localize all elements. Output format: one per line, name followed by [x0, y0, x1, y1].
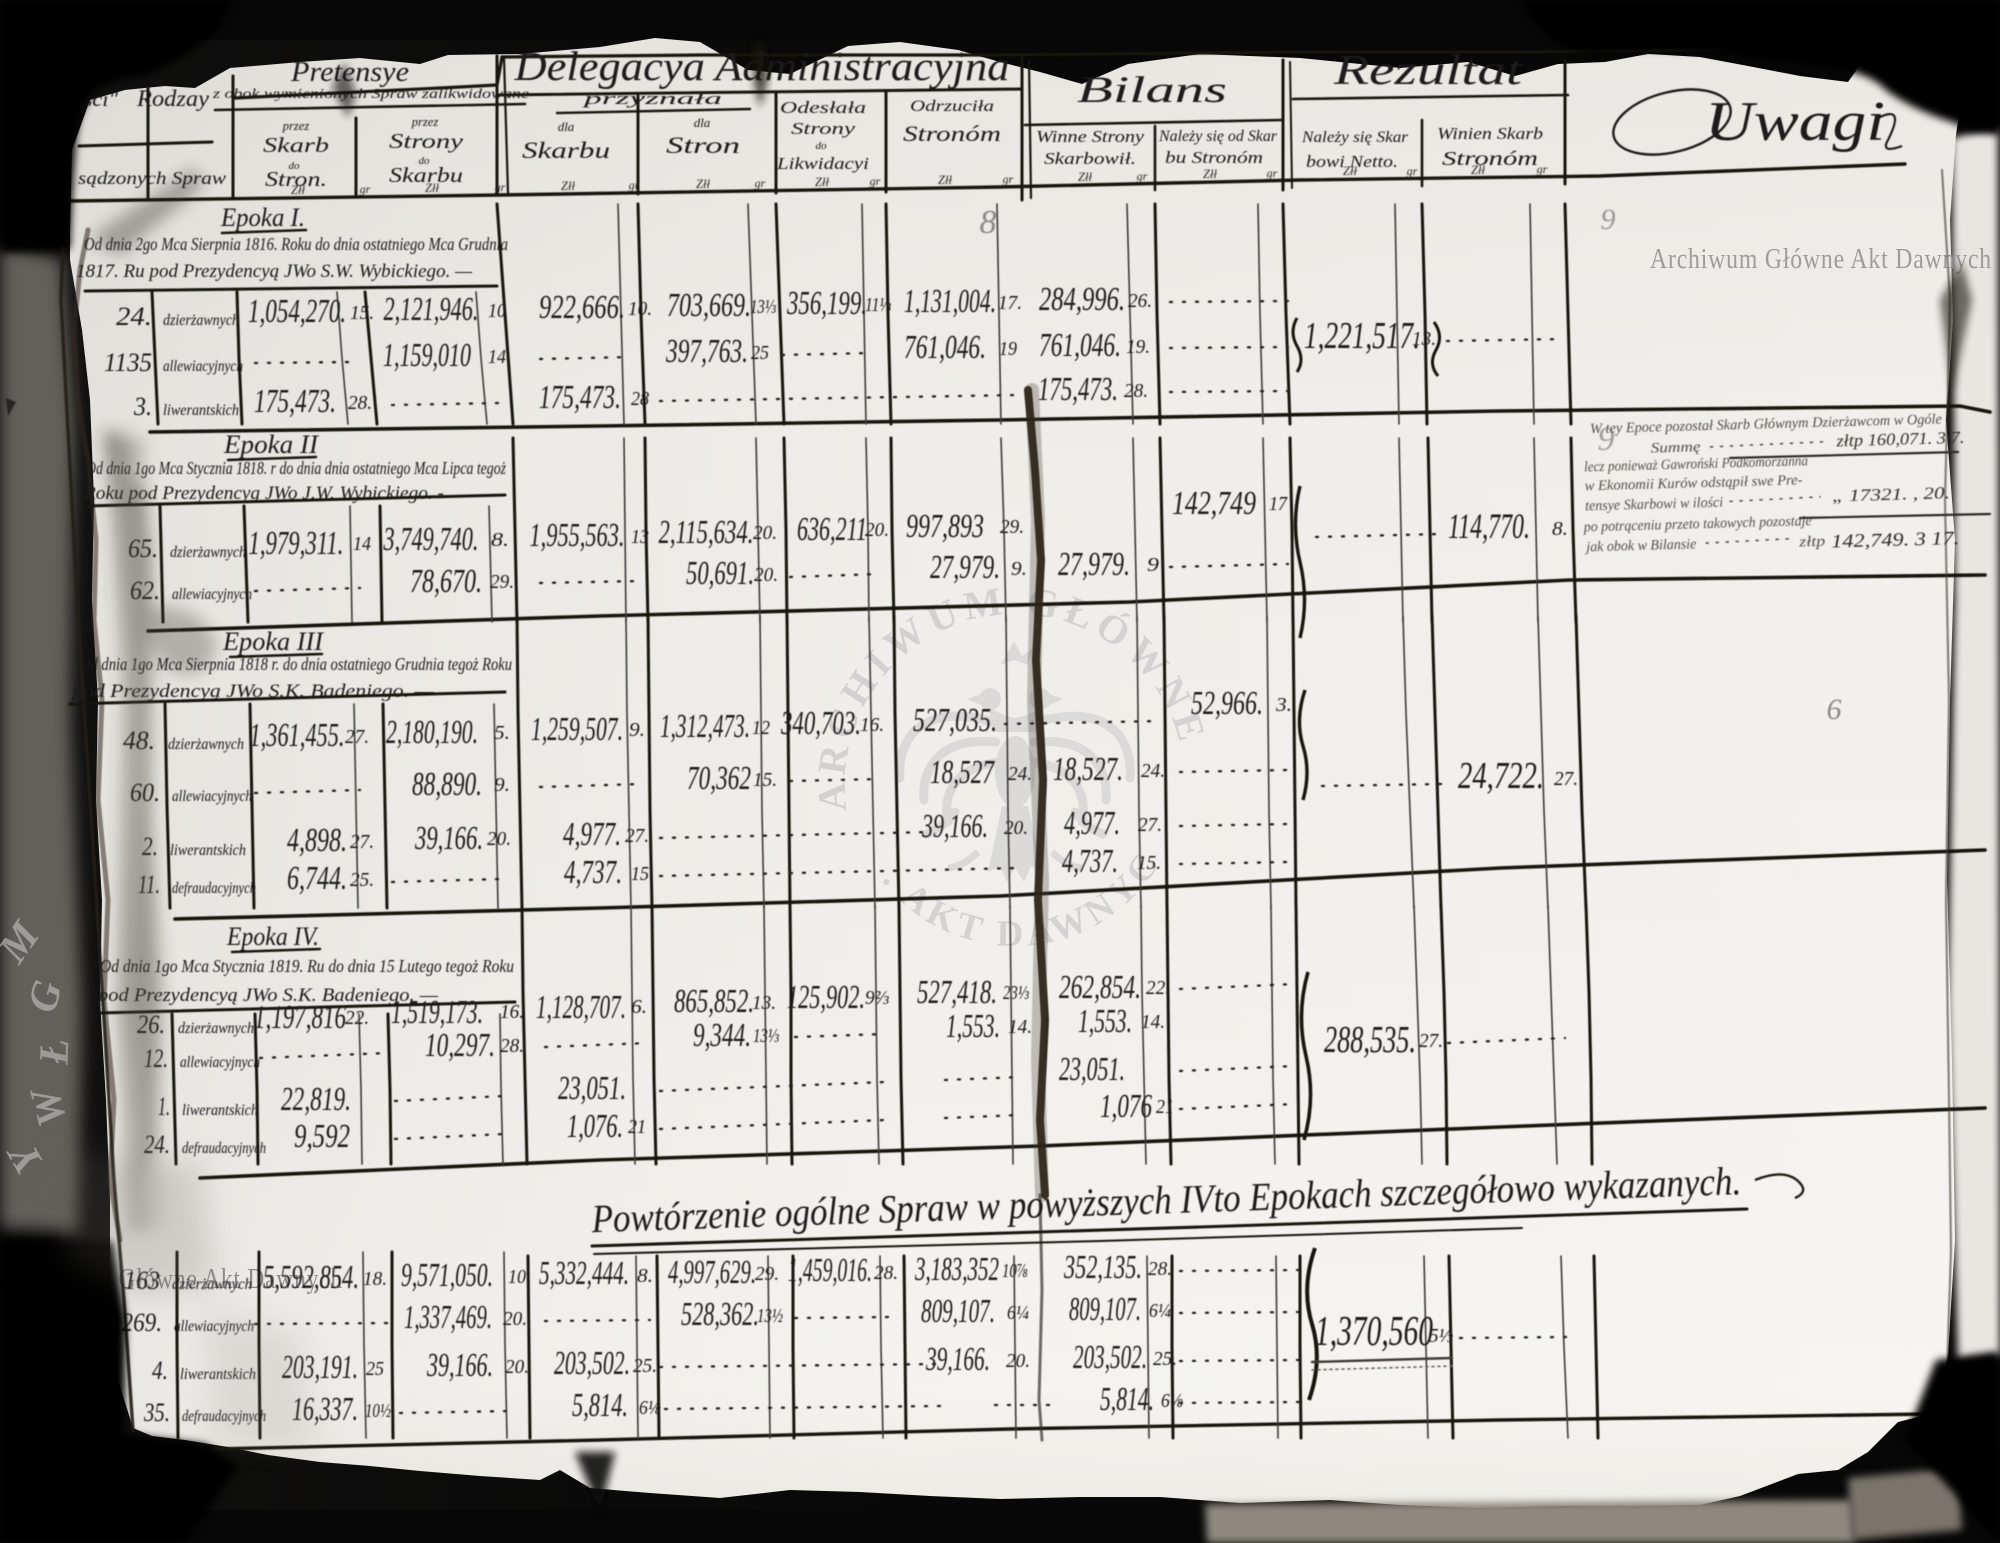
svg-text:12: 12: [752, 717, 770, 739]
svg-text:15.: 15.: [350, 302, 374, 324]
svg-text:6,744.: 6,744.: [287, 860, 347, 897]
svg-text:1,955,563.: 1,955,563.: [530, 517, 625, 554]
svg-text:1,221,517.: 1,221,517.: [1304, 315, 1420, 357]
svg-text:1,054,270.: 1,054,270.: [248, 293, 346, 330]
svg-text:142,749: 142,749: [1172, 485, 1256, 522]
svg-text:dzierżawnych: dzierżawnych: [178, 1020, 254, 1037]
svg-text:Odesłała: Odesłała: [780, 98, 866, 117]
svg-text:352,135.: 352,135.: [1063, 1249, 1142, 1286]
svg-text:9.: 9.: [494, 774, 510, 796]
svg-text:4,737.: 4,737.: [1062, 843, 1118, 880]
svg-text:1,337,469.: 1,337,469.: [404, 1299, 492, 1336]
svg-text:114,770.: 114,770.: [1448, 506, 1530, 546]
svg-text:25.: 25.: [350, 869, 374, 891]
svg-text:gr: gr: [1003, 172, 1014, 186]
svg-text:1,979,311.: 1,979,311.: [249, 525, 344, 562]
svg-text:Od dnia 1go Mca Stycznia 1818.: Od dnia 1go Mca Stycznia 1818. r do dnia…: [86, 458, 506, 478]
svg-text:2,180,190.: 2,180,190.: [386, 714, 478, 751]
svg-text:25.: 25.: [633, 1355, 657, 1377]
svg-text:złtp 160,071. 3 7.: złtp 160,071. 3 7.: [1835, 428, 1965, 451]
svg-text:27,979.: 27,979.: [930, 549, 1000, 586]
svg-text:1,131,004.: 1,131,004.: [904, 283, 996, 320]
svg-text:761,046.: 761,046.: [904, 329, 986, 366]
svg-text:527,035.: 527,035.: [913, 702, 997, 739]
svg-text:1,361,455.: 1,361,455.: [250, 717, 345, 754]
svg-text:809,107.: 809,107.: [1069, 1291, 1141, 1328]
svg-text:19.: 19.: [1126, 336, 1150, 358]
svg-text:29.: 29.: [755, 1263, 779, 1285]
svg-text:Epoka II: Epoka II: [223, 430, 319, 459]
svg-text:dzierżawnych: dzierżawnych: [163, 312, 239, 329]
svg-text:14: 14: [353, 533, 371, 555]
svg-text:gr: gr: [755, 176, 766, 190]
svg-text:16.: 16.: [500, 1001, 524, 1023]
svg-text:10: 10: [488, 300, 506, 322]
svg-text:78,670.: 78,670.: [410, 563, 482, 600]
svg-text:dla: dla: [694, 115, 711, 130]
svg-text:3,749,740.: 3,749,740.: [383, 521, 479, 558]
svg-text:gr: gr: [1267, 166, 1278, 180]
svg-text:4,997,629.: 4,997,629.: [668, 1254, 756, 1291]
svg-text:9.: 9.: [629, 719, 645, 741]
svg-text:4,737.: 4,737.: [564, 854, 622, 891]
svg-text:Złł: Złł: [291, 183, 305, 197]
svg-text:809,107.: 809,107.: [921, 1293, 995, 1330]
svg-text:39,166.: 39,166.: [925, 1341, 990, 1378]
svg-text:3.: 3.: [1275, 694, 1292, 716]
svg-text:18,527.: 18,527.: [1053, 751, 1123, 788]
svg-text:gr: gr: [870, 174, 881, 188]
svg-text:sądzonych Spraw: sądzonych Spraw: [78, 168, 226, 188]
svg-text:203,502.: 203,502.: [1073, 1339, 1147, 1376]
svg-text:5⅓: 5⅓: [1429, 1325, 1453, 1347]
svg-text:8.: 8.: [637, 1265, 653, 1287]
svg-text:397,763.: 397,763.: [665, 333, 748, 370]
svg-text:Należy się od Skar: Należy się od Skar: [1158, 128, 1278, 145]
svg-text:18.: 18.: [363, 1268, 387, 1290]
svg-text:Złł: Złł: [1203, 167, 1217, 181]
svg-text:allewiacyjnych: allewiacyjnych: [172, 586, 252, 603]
svg-text:24.: 24.: [1141, 760, 1165, 782]
svg-text:50,691.: 50,691.: [686, 555, 754, 592]
svg-text:Złł: Złł: [1078, 170, 1092, 184]
svg-text:1135: 1135: [104, 348, 152, 377]
svg-text:29.: 29.: [1000, 516, 1024, 538]
svg-text:28.: 28.: [1148, 1258, 1172, 1280]
svg-text:Likwidacyi: Likwidacyi: [776, 154, 870, 173]
svg-text:Od dnia 2go Mca Sierpnia 1816.: Od dnia 2go Mca Sierpnia 1816. Roku do d…: [84, 234, 508, 254]
svg-text:25: 25: [366, 1358, 384, 1380]
svg-text:13: 13: [631, 526, 649, 548]
svg-text:52,966.: 52,966.: [1191, 685, 1263, 722]
svg-text:5,814.: 5,814.: [572, 1387, 628, 1424]
svg-text:39,166.: 39,166.: [414, 820, 483, 857]
svg-text:2,115,634.: 2,115,634.: [659, 514, 754, 551]
svg-text:1817. Ru pod Prezydencyą JWo: 1817. Ru pod Prezydencyą JWo S.W. Wybick…: [76, 261, 472, 282]
svg-text:Stronóm: Stronóm: [1442, 148, 1538, 170]
svg-text:13½: 13½: [757, 1305, 783, 1327]
svg-text:gr: gr: [629, 178, 640, 192]
svg-text:8: 8: [980, 204, 997, 241]
svg-text:Rezultat: Rezultat: [1333, 48, 1524, 94]
svg-text:20.: 20.: [505, 1356, 529, 1378]
svg-text:Złł: Złł: [1471, 163, 1485, 177]
svg-text:125,902.: 125,902.: [787, 979, 865, 1016]
svg-text:Bilans: Bilans: [1077, 70, 1227, 111]
svg-text:3,183,352: 3,183,352: [914, 1251, 999, 1288]
svg-text:liwerantskich: liwerantskich: [182, 1102, 258, 1119]
svg-text:8.: 8.: [491, 529, 509, 551]
svg-text:28.: 28.: [874, 1262, 898, 1284]
svg-text:Złł: Złł: [815, 175, 829, 189]
svg-text:Złł: Złł: [425, 181, 439, 195]
svg-text:Należy się Skar: Należy się Skar: [1301, 129, 1409, 146]
svg-text:10: 10: [508, 1266, 526, 1288]
svg-text:1,312,473.: 1,312,473.: [660, 708, 750, 745]
svg-text:10.: 10.: [628, 298, 652, 320]
svg-text:Summę: Summę: [1650, 439, 1701, 456]
svg-text:14: 14: [488, 346, 506, 368]
svg-text:922,666.: 922,666.: [539, 289, 625, 326]
svg-text:13⅓: 13⅓: [750, 296, 776, 318]
svg-text:356,199.: 356,199.: [786, 285, 867, 322]
svg-text:10½: 10½: [365, 1400, 391, 1422]
svg-text:25.: 25.: [1153, 1348, 1177, 1370]
svg-text:5.: 5.: [494, 722, 510, 744]
svg-text:24,722.: 24,722.: [1458, 755, 1544, 797]
svg-text:liwerantskich: liwerantskich: [163, 402, 239, 419]
svg-text:1,459,016.: 1,459,016.: [788, 1252, 872, 1289]
svg-text:Skarb: Skarb: [263, 133, 329, 157]
svg-text:„ 17321. , 20.: „ 17321. , 20.: [1832, 483, 1950, 505]
svg-text:636,211: 636,211: [797, 511, 867, 548]
svg-text:defraudacyjnych: defraudacyjnych: [182, 1140, 266, 1157]
svg-text:28.: 28.: [500, 1035, 524, 1057]
svg-text:16.: 16.: [860, 714, 884, 736]
svg-text:przez: przez: [411, 115, 439, 129]
svg-text:175,473.: 175,473.: [1038, 371, 1118, 408]
svg-text:6¼: 6¼: [1007, 1302, 1029, 1324]
svg-text:9⅔: 9⅔: [865, 987, 889, 1009]
svg-text:11⅓: 11⅓: [865, 294, 891, 316]
svg-text:20.: 20.: [865, 519, 889, 541]
svg-text:27.: 27.: [345, 726, 369, 748]
svg-text:14.: 14.: [1008, 1016, 1032, 1038]
svg-text:22,819.: 22,819.: [281, 1081, 351, 1118]
svg-text:528,362.: 528,362.: [681, 1296, 759, 1333]
svg-text:17.: 17.: [998, 292, 1022, 314]
svg-text:defraudacyjnych: defraudacyjnych: [172, 880, 256, 897]
svg-text:19: 19: [999, 338, 1017, 360]
svg-text:przez: przez: [282, 119, 310, 133]
svg-text:1,197,816: 1,197,816: [254, 999, 346, 1036]
svg-text:18,527: 18,527: [930, 754, 995, 791]
svg-text:20.: 20.: [1004, 817, 1028, 839]
svg-text:9.: 9.: [1011, 558, 1027, 580]
svg-text:Stronóm: Stronóm: [903, 121, 1001, 146]
svg-text:25: 25: [751, 342, 769, 364]
svg-text:3.: 3.: [133, 392, 152, 421]
svg-text:17: 17: [1269, 493, 1288, 515]
svg-text:21: 21: [1156, 1096, 1174, 1118]
svg-text:6.: 6.: [631, 996, 647, 1018]
svg-text:4,898.: 4,898.: [287, 822, 347, 859]
svg-text:Stron: Stron: [666, 133, 740, 158]
svg-text:2,121,946.: 2,121,946.: [384, 291, 479, 328]
svg-text:6: 6: [1827, 693, 1842, 726]
svg-text:39,166.: 39,166.: [426, 1347, 493, 1384]
svg-text:z obok wymienionych Spraw zali: z obok wymienionych Spraw zalikwidowane: [212, 86, 529, 101]
svg-text:26.: 26.: [1128, 290, 1152, 312]
svg-text:27,979.: 27,979.: [1058, 546, 1130, 583]
svg-text:1,259,507.: 1,259,507.: [531, 711, 623, 748]
svg-text:175,473.: 175,473.: [254, 383, 336, 420]
svg-text:gr: gr: [360, 182, 371, 196]
svg-text:88,890.: 88,890.: [412, 766, 482, 803]
svg-text:28: 28: [631, 388, 649, 410]
svg-text:27.: 27.: [1138, 814, 1162, 836]
svg-text:23,051.: 23,051.: [1059, 1051, 1125, 1088]
svg-text:4,977.: 4,977.: [563, 816, 621, 853]
svg-text:Winien Skarb: Winien Skarb: [1437, 124, 1543, 143]
svg-text:703,669.: 703,669.: [667, 287, 751, 324]
svg-text:340,703.: 340,703.: [780, 705, 861, 742]
svg-text:70,362: 70,362: [687, 760, 751, 797]
svg-text:15.: 15.: [1137, 852, 1161, 874]
svg-text:9: 9: [1601, 203, 1616, 236]
svg-text:Złł: Złł: [938, 173, 952, 187]
svg-text:gr: gr: [1407, 164, 1418, 178]
svg-text:761,046.: 761,046.: [1039, 327, 1121, 364]
svg-text:liwerantskich: liwerantskich: [170, 842, 246, 859]
svg-text:6⅛: 6⅛: [1161, 1390, 1183, 1412]
svg-text:203,502.: 203,502.: [554, 1345, 630, 1382]
svg-text:allewiacyjnych: allewiacyjnych: [180, 1054, 260, 1071]
svg-text:dzierżawnych: dzierżawnych: [168, 736, 244, 753]
svg-text:14.: 14.: [1141, 1011, 1165, 1033]
svg-text:8.: 8.: [1552, 518, 1568, 540]
svg-text:13⅓: 13⅓: [753, 1025, 779, 1047]
svg-text:262,854.: 262,854.: [1059, 969, 1141, 1006]
svg-text:Odrzuciła: Odrzuciła: [910, 98, 994, 115]
svg-text:9,592: 9,592: [294, 1118, 350, 1155]
svg-text:Winne Strony: Winne Strony: [1036, 127, 1145, 146]
svg-text:27.: 27.: [350, 831, 374, 853]
svg-text:29.: 29.: [490, 571, 514, 593]
svg-text:Epoka III: Epoka III: [222, 627, 324, 656]
svg-text:Rodzay: Rodzay: [136, 86, 210, 111]
svg-text:gr: gr: [1537, 162, 1548, 176]
svg-text:Złł: Złł: [561, 179, 575, 193]
svg-text:13.: 13.: [1412, 328, 1436, 350]
svg-text:Skarbu: Skarbu: [522, 138, 610, 163]
svg-text:28.: 28.: [1124, 380, 1148, 402]
svg-text:20.: 20.: [1006, 1350, 1030, 1372]
svg-text:Epoka IV.: Epoka IV.: [226, 922, 319, 951]
svg-text:Złł: Złł: [1343, 164, 1357, 178]
svg-text:865,852.: 865,852.: [674, 983, 754, 1020]
svg-text:20.: 20.: [503, 1308, 527, 1330]
svg-text:Złł: Złł: [696, 177, 710, 191]
svg-text:1,159,010: 1,159,010: [383, 337, 471, 374]
svg-text:gr: gr: [495, 180, 506, 194]
svg-text:28.: 28.: [348, 392, 372, 414]
svg-text:do: do: [816, 140, 828, 152]
svg-text:jak obok w Bilansie: jak obok w Bilansie: [1584, 536, 1697, 555]
svg-text:9: 9: [1147, 554, 1159, 576]
svg-text:Strony: Strony: [389, 129, 464, 153]
svg-text:15: 15: [631, 863, 649, 885]
svg-text:288,535.: 288,535.: [1324, 1019, 1416, 1061]
svg-text:bu Stronóm: bu Stronóm: [1165, 148, 1263, 167]
svg-text:gr: gr: [1137, 169, 1148, 183]
svg-text:10⅞: 10⅞: [1002, 1260, 1028, 1282]
svg-text:27.: 27.: [1554, 768, 1578, 790]
svg-text:5,592,854.: 5,592,854.: [263, 1259, 359, 1296]
svg-text:Strony: Strony: [791, 119, 856, 138]
svg-text:Uwagi: Uwagi: [1705, 91, 1885, 153]
svg-text:284,996.: 284,996.: [1039, 281, 1125, 318]
svg-text:1,370,560: 1,370,560: [1315, 1309, 1433, 1355]
svg-text:przyznała: przyznała: [582, 89, 722, 108]
svg-text:6¼: 6¼: [1149, 1300, 1171, 1322]
svg-text:allewiacyjnych: allewiacyjnych: [172, 788, 252, 805]
svg-text:997,893: 997,893: [906, 508, 984, 545]
svg-text:35.: 35.: [143, 1398, 170, 1427]
svg-text:20.: 20.: [754, 564, 778, 586]
svg-text:22.: 22.: [1146, 977, 1170, 999]
svg-text:Skarbowił.: Skarbowił.: [1044, 149, 1136, 168]
svg-text:1,076.: 1,076.: [567, 1108, 623, 1145]
svg-text:4,977.: 4,977.: [1064, 805, 1120, 842]
svg-text:23,051.: 23,051.: [558, 1070, 626, 1107]
svg-text:dla: dla: [558, 119, 575, 134]
svg-text:1,553.: 1,553.: [946, 1008, 1000, 1045]
svg-text:20.: 20.: [753, 522, 777, 544]
svg-text:23⅓: 23⅓: [1003, 982, 1029, 1004]
svg-text:5,814.: 5,814.: [1100, 1381, 1154, 1418]
svg-text:allewiacyjnych: allewiacyjnych: [163, 358, 243, 375]
svg-text:dzierżawnych: dzierżawnych: [170, 544, 246, 561]
svg-text:21: 21: [628, 1116, 646, 1138]
svg-text:1,519,173.: 1,519,173.: [391, 994, 483, 1031]
svg-text:1,128,707.: 1,128,707.: [536, 989, 626, 1026]
svg-text:20.: 20.: [487, 828, 511, 850]
svg-text:4.: 4.: [152, 1356, 168, 1385]
svg-text:9,571,050.: 9,571,050.: [401, 1257, 493, 1294]
svg-text:10,297.: 10,297.: [425, 1027, 495, 1064]
svg-text:39,166.: 39,166.: [921, 808, 988, 845]
svg-text:15.: 15.: [753, 769, 777, 791]
svg-text:27.: 27.: [625, 825, 649, 847]
svg-text:1,553.: 1,553.: [1078, 1003, 1132, 1040]
svg-text:24.: 24.: [1008, 763, 1032, 785]
svg-text:5,332,444.: 5,332,444.: [539, 1255, 629, 1292]
svg-text:175,473.: 175,473.: [539, 379, 621, 416]
svg-text:142,749. 3 17.: 142,749. 3 17.: [1831, 528, 1960, 553]
svg-text:27.: 27.: [1419, 1030, 1443, 1052]
svg-text:Epoka I.: Epoka I.: [220, 203, 305, 232]
svg-text:1,076: 1,076: [1100, 1088, 1152, 1125]
svg-text:6⅛: 6⅛: [639, 1397, 661, 1419]
svg-text:złtp: złtp: [1798, 534, 1826, 551]
svg-text:22.: 22.: [345, 1007, 369, 1029]
svg-text:527,418.: 527,418.: [917, 974, 997, 1011]
svg-text:9,344.: 9,344.: [693, 1017, 751, 1054]
svg-text:13.: 13.: [752, 992, 776, 1014]
svg-text:24.: 24.: [116, 302, 152, 331]
